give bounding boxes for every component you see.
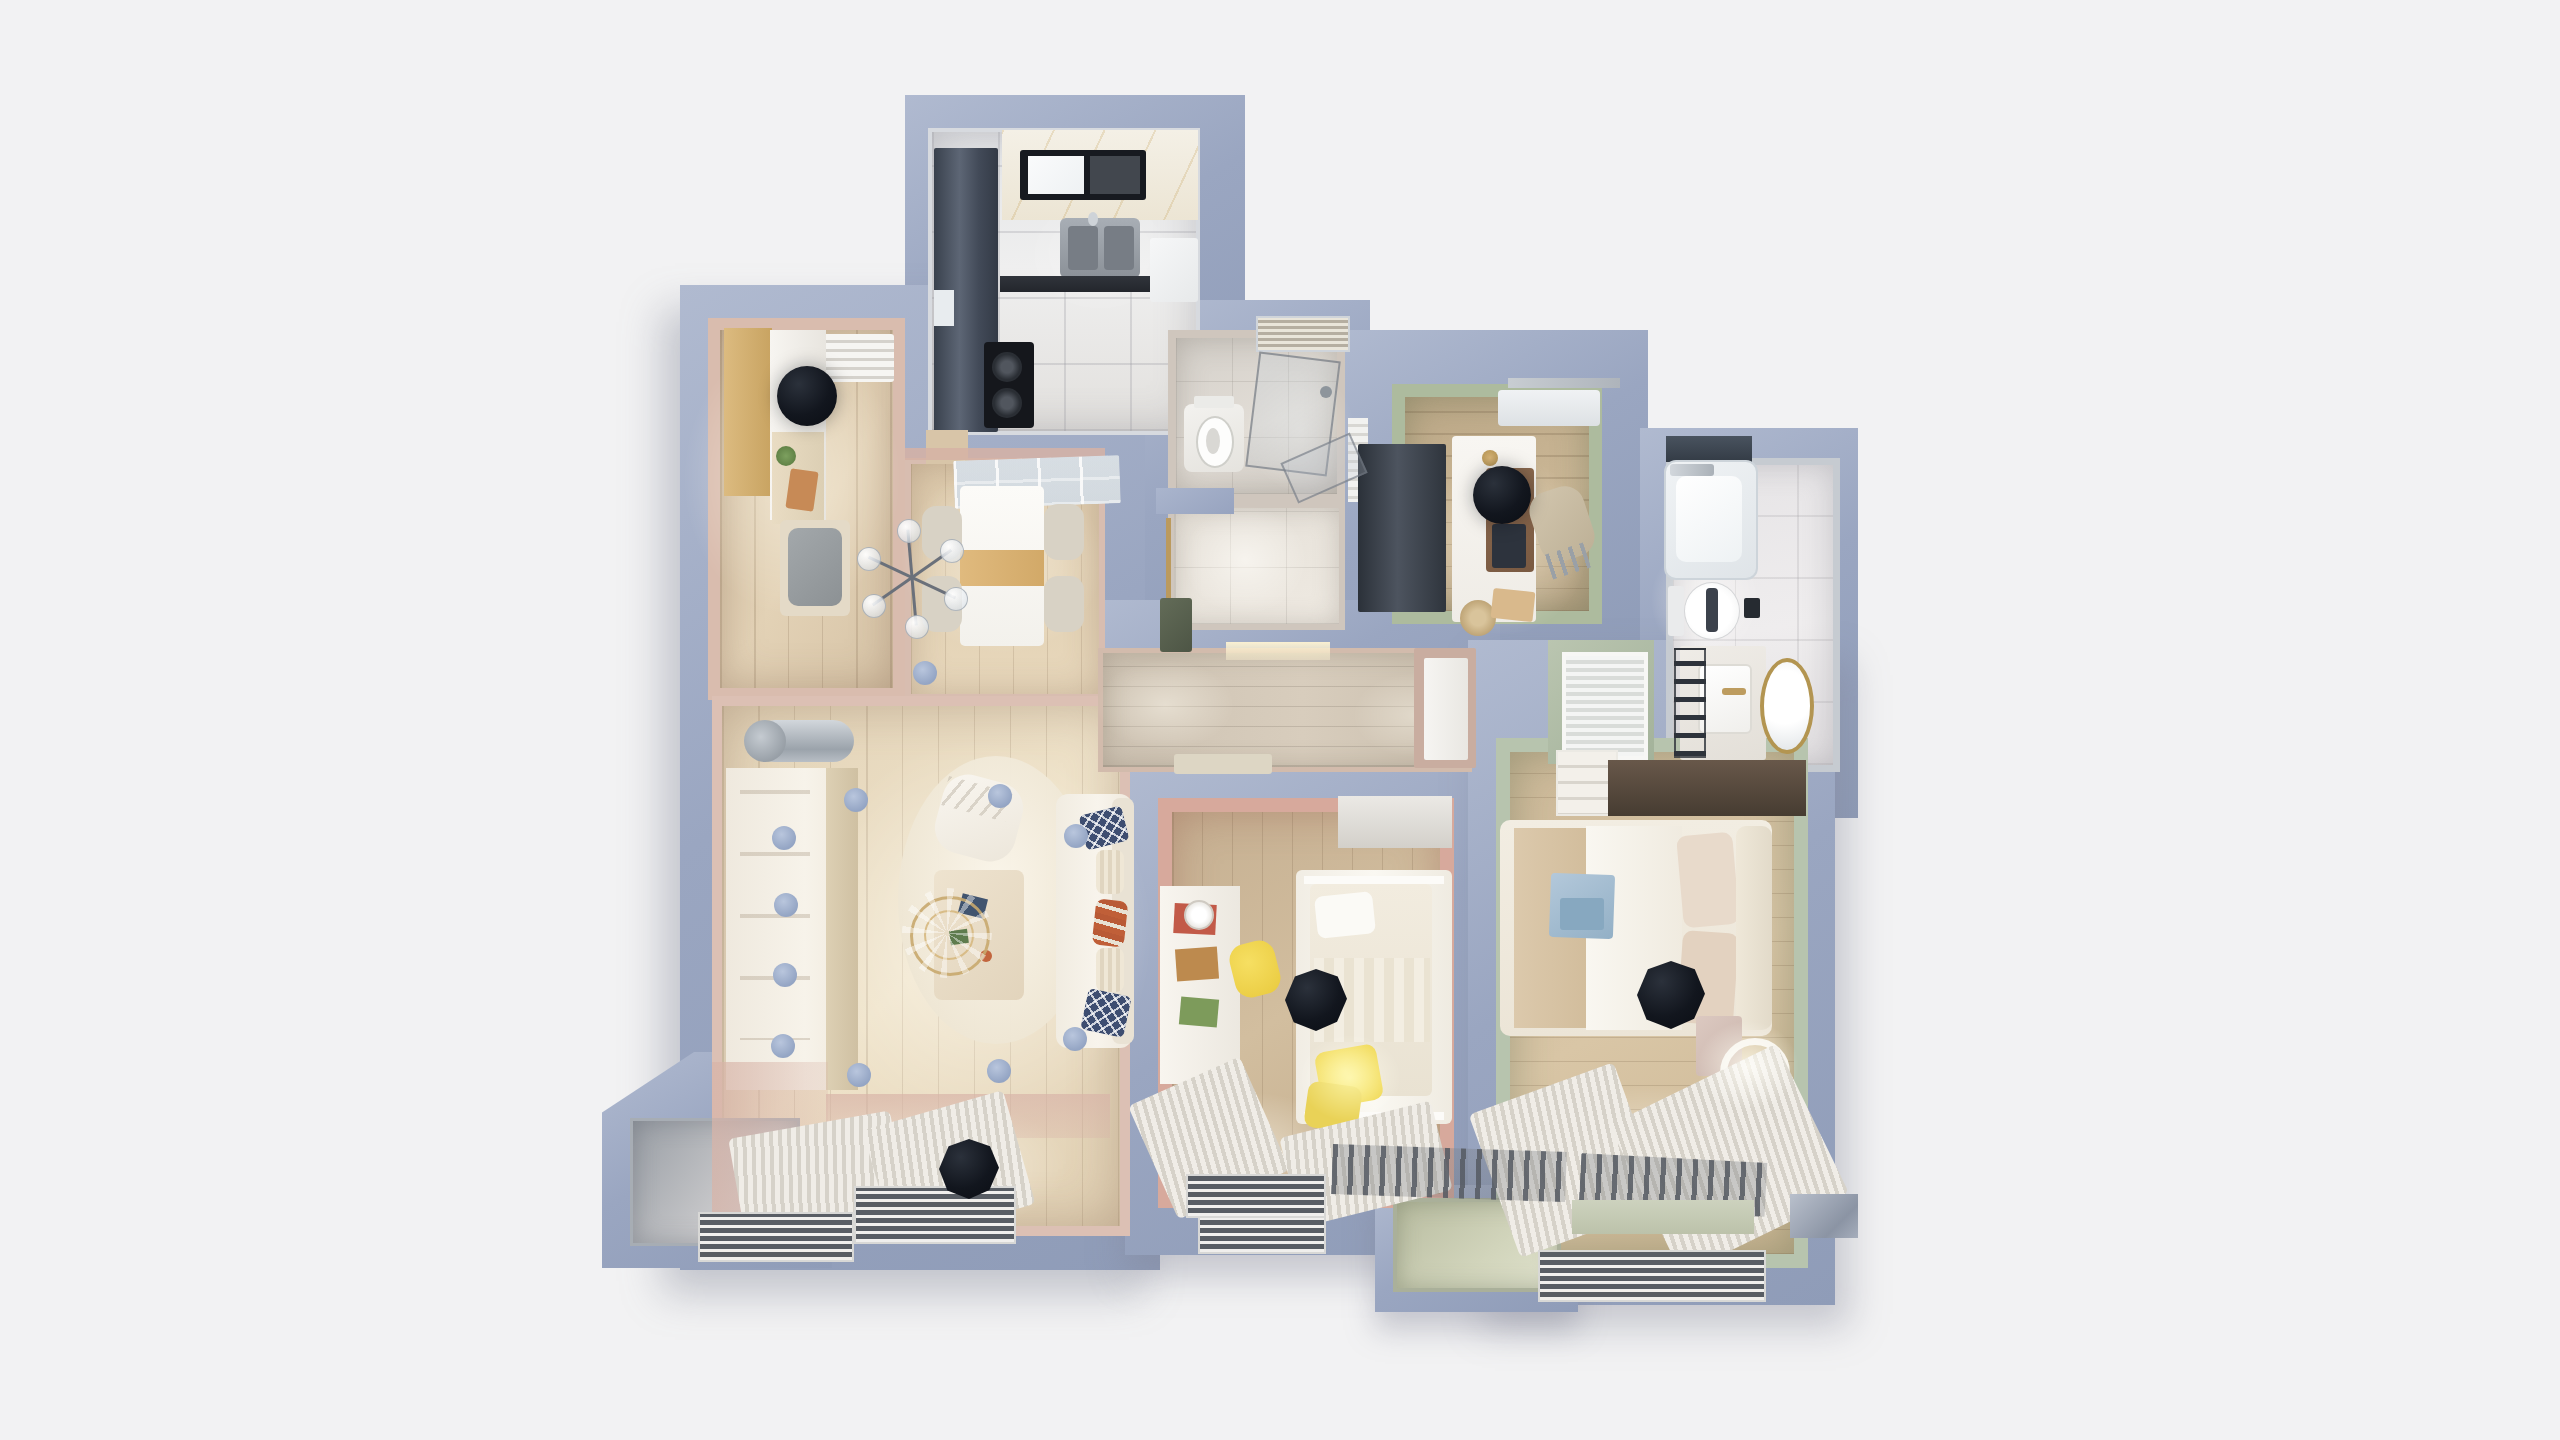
- downlight-icon: [987, 1059, 1011, 1083]
- ceiling-lights-layer: [0, 0, 2560, 1440]
- downlight-icon: [847, 1063, 871, 1087]
- pendant-light-entry[interactable]: [777, 366, 837, 426]
- downlight-icon: [988, 784, 1012, 808]
- pendant-light-kids[interactable]: [1285, 969, 1347, 1031]
- downlight-icon: [774, 893, 798, 917]
- downlight-icon: [1064, 824, 1088, 848]
- floorplan-scene: [0, 0, 2560, 1440]
- downlight-icon: [771, 1034, 795, 1058]
- pendant-light-master[interactable]: [1637, 961, 1705, 1029]
- pendant-light-study[interactable]: [1473, 466, 1531, 524]
- pendant-light-living[interactable]: [939, 1139, 999, 1199]
- downlight-icon: [913, 661, 937, 685]
- downlight-icon: [1063, 1027, 1087, 1051]
- downlight-icon: [772, 826, 796, 850]
- downlight-icon: [844, 788, 868, 812]
- downlight-icon: [773, 963, 797, 987]
